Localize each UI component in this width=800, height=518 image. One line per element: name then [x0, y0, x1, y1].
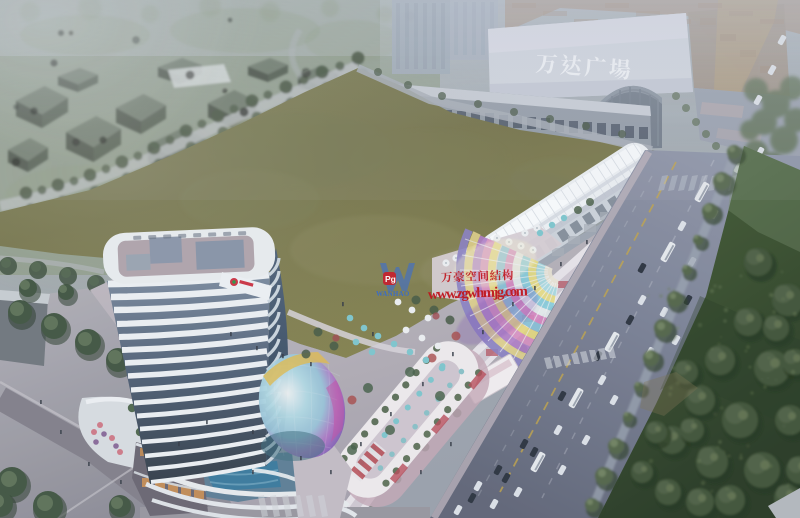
svg-text:WANHAO: WANHAO [376, 290, 410, 298]
svg-text:Pg: Pg [385, 274, 396, 284]
